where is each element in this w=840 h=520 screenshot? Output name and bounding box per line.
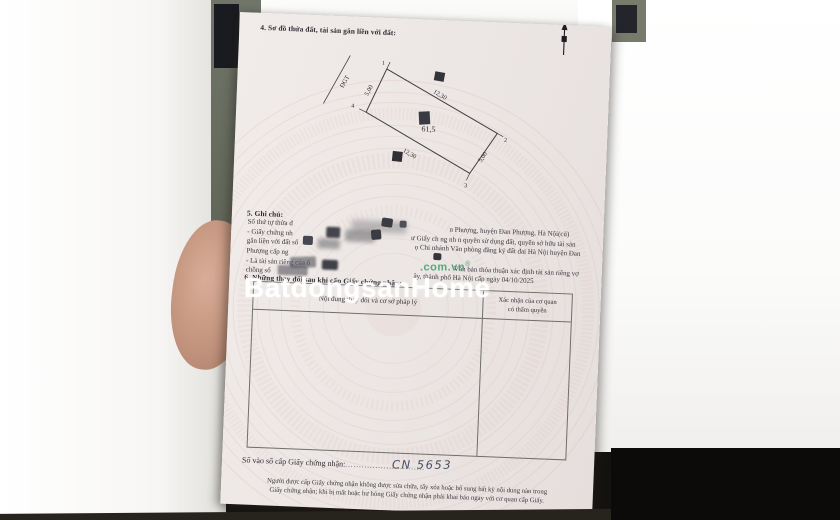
page-content: 4. Sơ đồ thửa đất, tài sản gắn liền với … [220, 12, 611, 519]
footer-note: Người được cấp Giấy chứng nhận không đượ… [235, 476, 579, 508]
background-gap-top-shadow [616, 5, 637, 33]
changes-table-body [248, 310, 571, 460]
redaction-blob [381, 217, 393, 227]
background-gap-left-shadow [214, 4, 239, 68]
note-text: Số thứ tự thửa đ [247, 217, 293, 227]
redaction-blob [322, 259, 338, 270]
empty-cell-confirmation [477, 319, 570, 459]
empty-cell-content [248, 310, 483, 456]
registry-number-handwritten: CN 5653 [392, 458, 452, 472]
column-header-line: có thẩm quyền [508, 305, 547, 315]
dotted-line: ................ [345, 461, 389, 471]
note-text: - Giấy chứng nh [247, 227, 293, 237]
section4-heading: 4. Sơ đồ thửa đất, tài sản gắn liền với … [260, 23, 396, 37]
redaction-blob [326, 227, 340, 239]
photo-of-certificate: 1 2 3 4 12,30 12,30 5,00 5,00 61,5 ĐGT 4… [0, 0, 840, 520]
redaction-blob [433, 253, 441, 260]
redaction-blob [371, 229, 382, 240]
photo-watermark: BatdongsanHome [244, 272, 491, 304]
column-header-confirmation: Xác nhận của cơ quan có thẩm quyền [483, 291, 572, 322]
changes-table: Nội dung thay đổi và cơ sở pháp lý Xác n… [247, 281, 573, 461]
redaction-blob [318, 238, 340, 249]
redaction-blob [303, 236, 313, 245]
watermark-domain-text: .com.vn [420, 262, 465, 274]
note-text: Phượng cấp ng [246, 247, 288, 257]
certificate-page: 1 2 3 4 12,30 12,30 5,00 5,00 61,5 ĐGT 4… [220, 12, 611, 519]
backing-sheet-right [578, 0, 840, 452]
table-corner-dark [611, 448, 840, 520]
note-text: gắn liền với đất số [247, 237, 299, 247]
registered-mark-icon: ® [465, 261, 471, 268]
redaction-blob [399, 221, 406, 228]
photo-watermark-domain: .com.vn® [420, 261, 471, 274]
registry-label: Số vào sổ cấp Giấy chứng nhận: [242, 455, 346, 468]
